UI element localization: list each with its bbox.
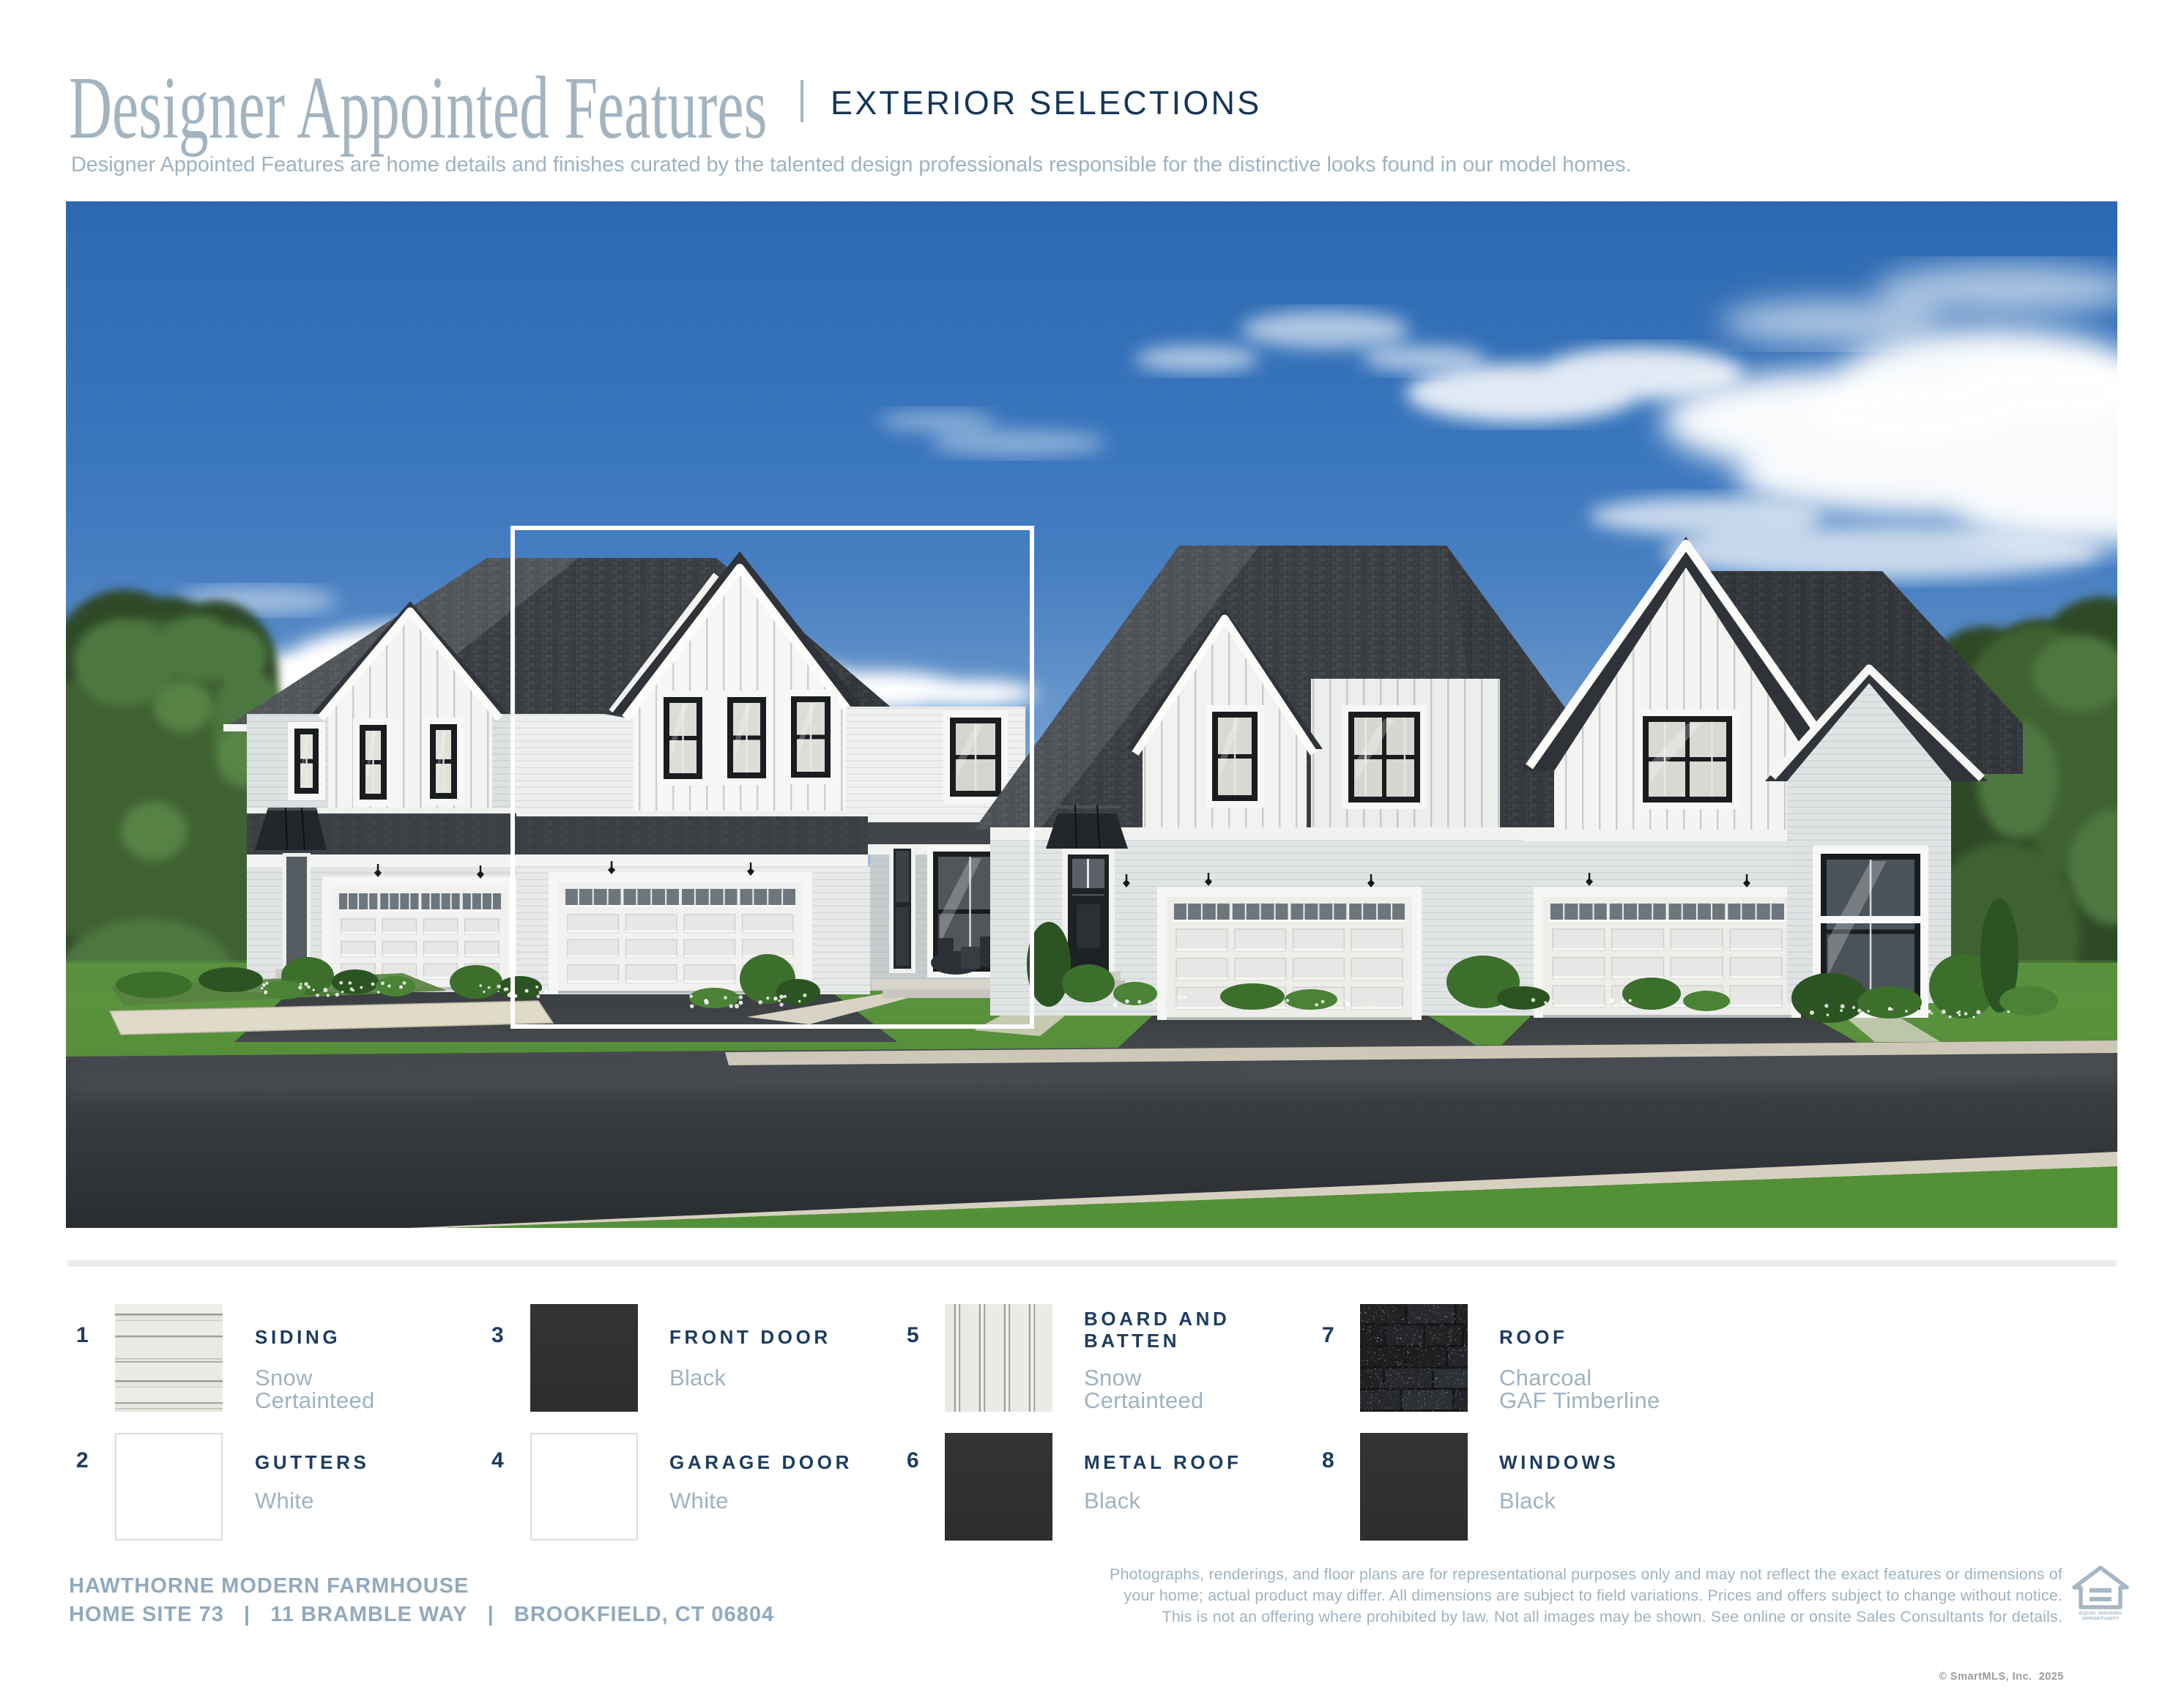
svg-text:OPPORTUNITY: OPPORTUNITY: [2082, 1617, 2120, 1622]
svg-text:EQUAL HOUSING: EQUAL HOUSING: [2079, 1611, 2122, 1616]
